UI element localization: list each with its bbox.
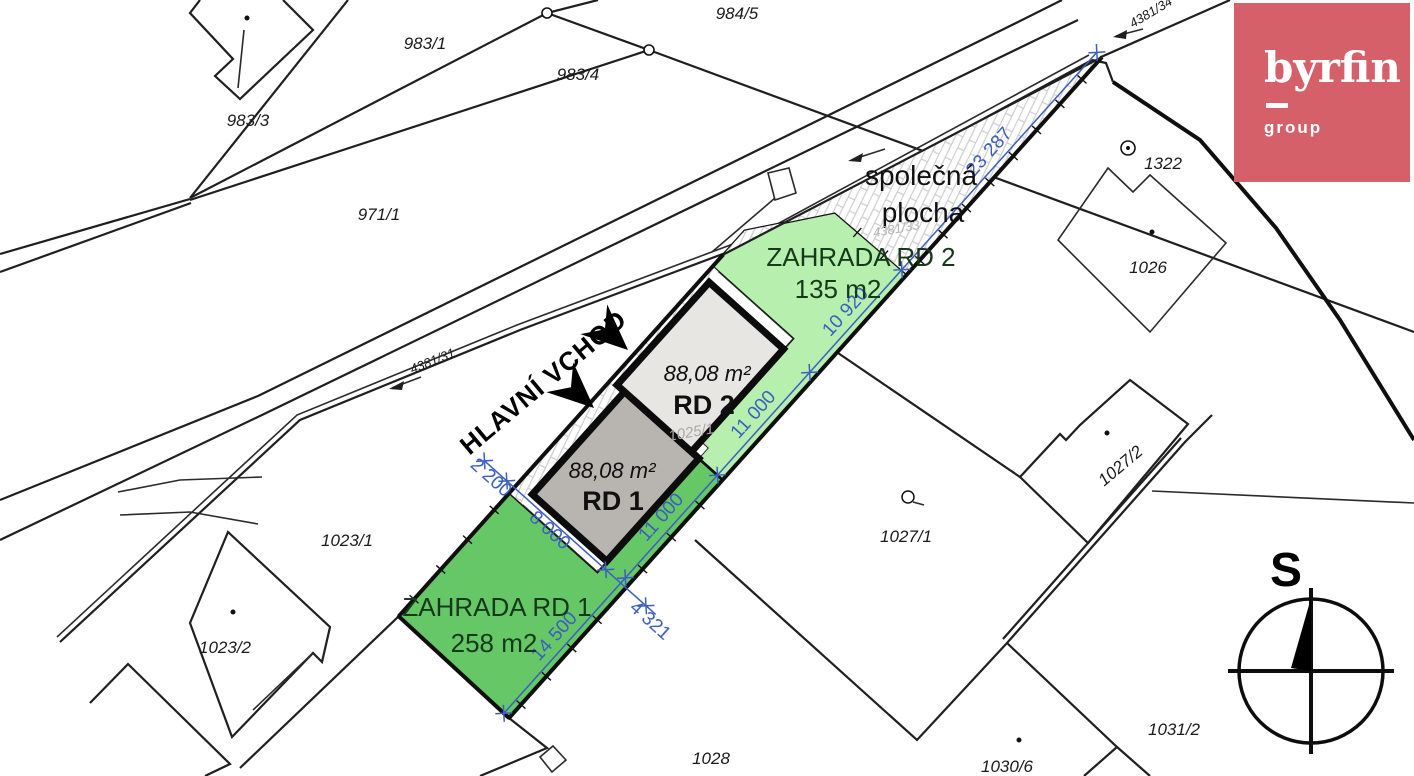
logo-brand-text: byrfin — [1264, 47, 1410, 89]
building-1026-outline — [1058, 168, 1226, 332]
parcel-label: 983/4 — [557, 65, 600, 84]
parcel-label: 1031/2 — [1148, 720, 1201, 739]
dimension-label: 4 321 — [625, 597, 674, 644]
building-rd2-area-label: 88,08 m² — [664, 361, 751, 386]
garden-rd2-area-label: 135 m2 — [795, 274, 882, 304]
compass-north-label: S — [1270, 544, 1302, 597]
site-plan-map: 14 500 11 000 11 000 10 920 23 287 2 200… — [0, 0, 1414, 776]
boundary-node — [542, 8, 552, 18]
parcel-label: 4381/31 — [408, 345, 457, 377]
building-983-3-outline — [190, 0, 313, 99]
building-rd1-area-label: 88,08 m² — [569, 458, 656, 483]
parcel-label: 1023/2 — [199, 638, 252, 657]
parcel-label: 1023/1 — [321, 531, 373, 550]
building-rd1-label: RD 1 — [582, 486, 644, 516]
garden-rd1-label: ZAHRADA RD 1 — [402, 592, 591, 622]
parcel-label: 4381/34 — [1127, 0, 1175, 31]
parcel-label: 984/5 — [716, 4, 759, 23]
parcel-label: 1028 — [692, 749, 730, 768]
garden-rd1-area-label: 258 m2 — [451, 628, 538, 658]
common-area-label-1: společná — [865, 160, 978, 191]
symbol-1027-1 — [902, 491, 914, 503]
site-plan-page: 14 500 11 000 11 000 10 920 23 287 2 200… — [0, 0, 1414, 776]
compass-rose: S — [1228, 544, 1394, 754]
gate-symbol — [768, 168, 796, 200]
parcel-label: 983/1 — [404, 34, 447, 53]
logo-sub-text: group — [1264, 118, 1410, 138]
parcel-label: 1026 — [1129, 258, 1167, 277]
garden-rd2-label: ZAHRADA RD 2 — [766, 242, 955, 272]
byrfin-logo: byrfin group — [1234, 3, 1410, 182]
building-rd2-label: RD 2 — [673, 390, 735, 420]
compass-needle — [1291, 598, 1311, 671]
building-1027-2-outline — [1020, 380, 1188, 543]
parcel-label: 1322 — [1144, 154, 1182, 173]
parcel-label: 971/1 — [358, 205, 401, 224]
logo-dash — [1266, 103, 1288, 108]
building-1023-2-outline — [190, 532, 330, 737]
parcel-label: 1030/6 — [981, 757, 1034, 776]
parcel-label: 983/3 — [227, 111, 270, 130]
boundary-node — [644, 45, 654, 55]
parcel-label: 1027/1 — [880, 527, 932, 546]
